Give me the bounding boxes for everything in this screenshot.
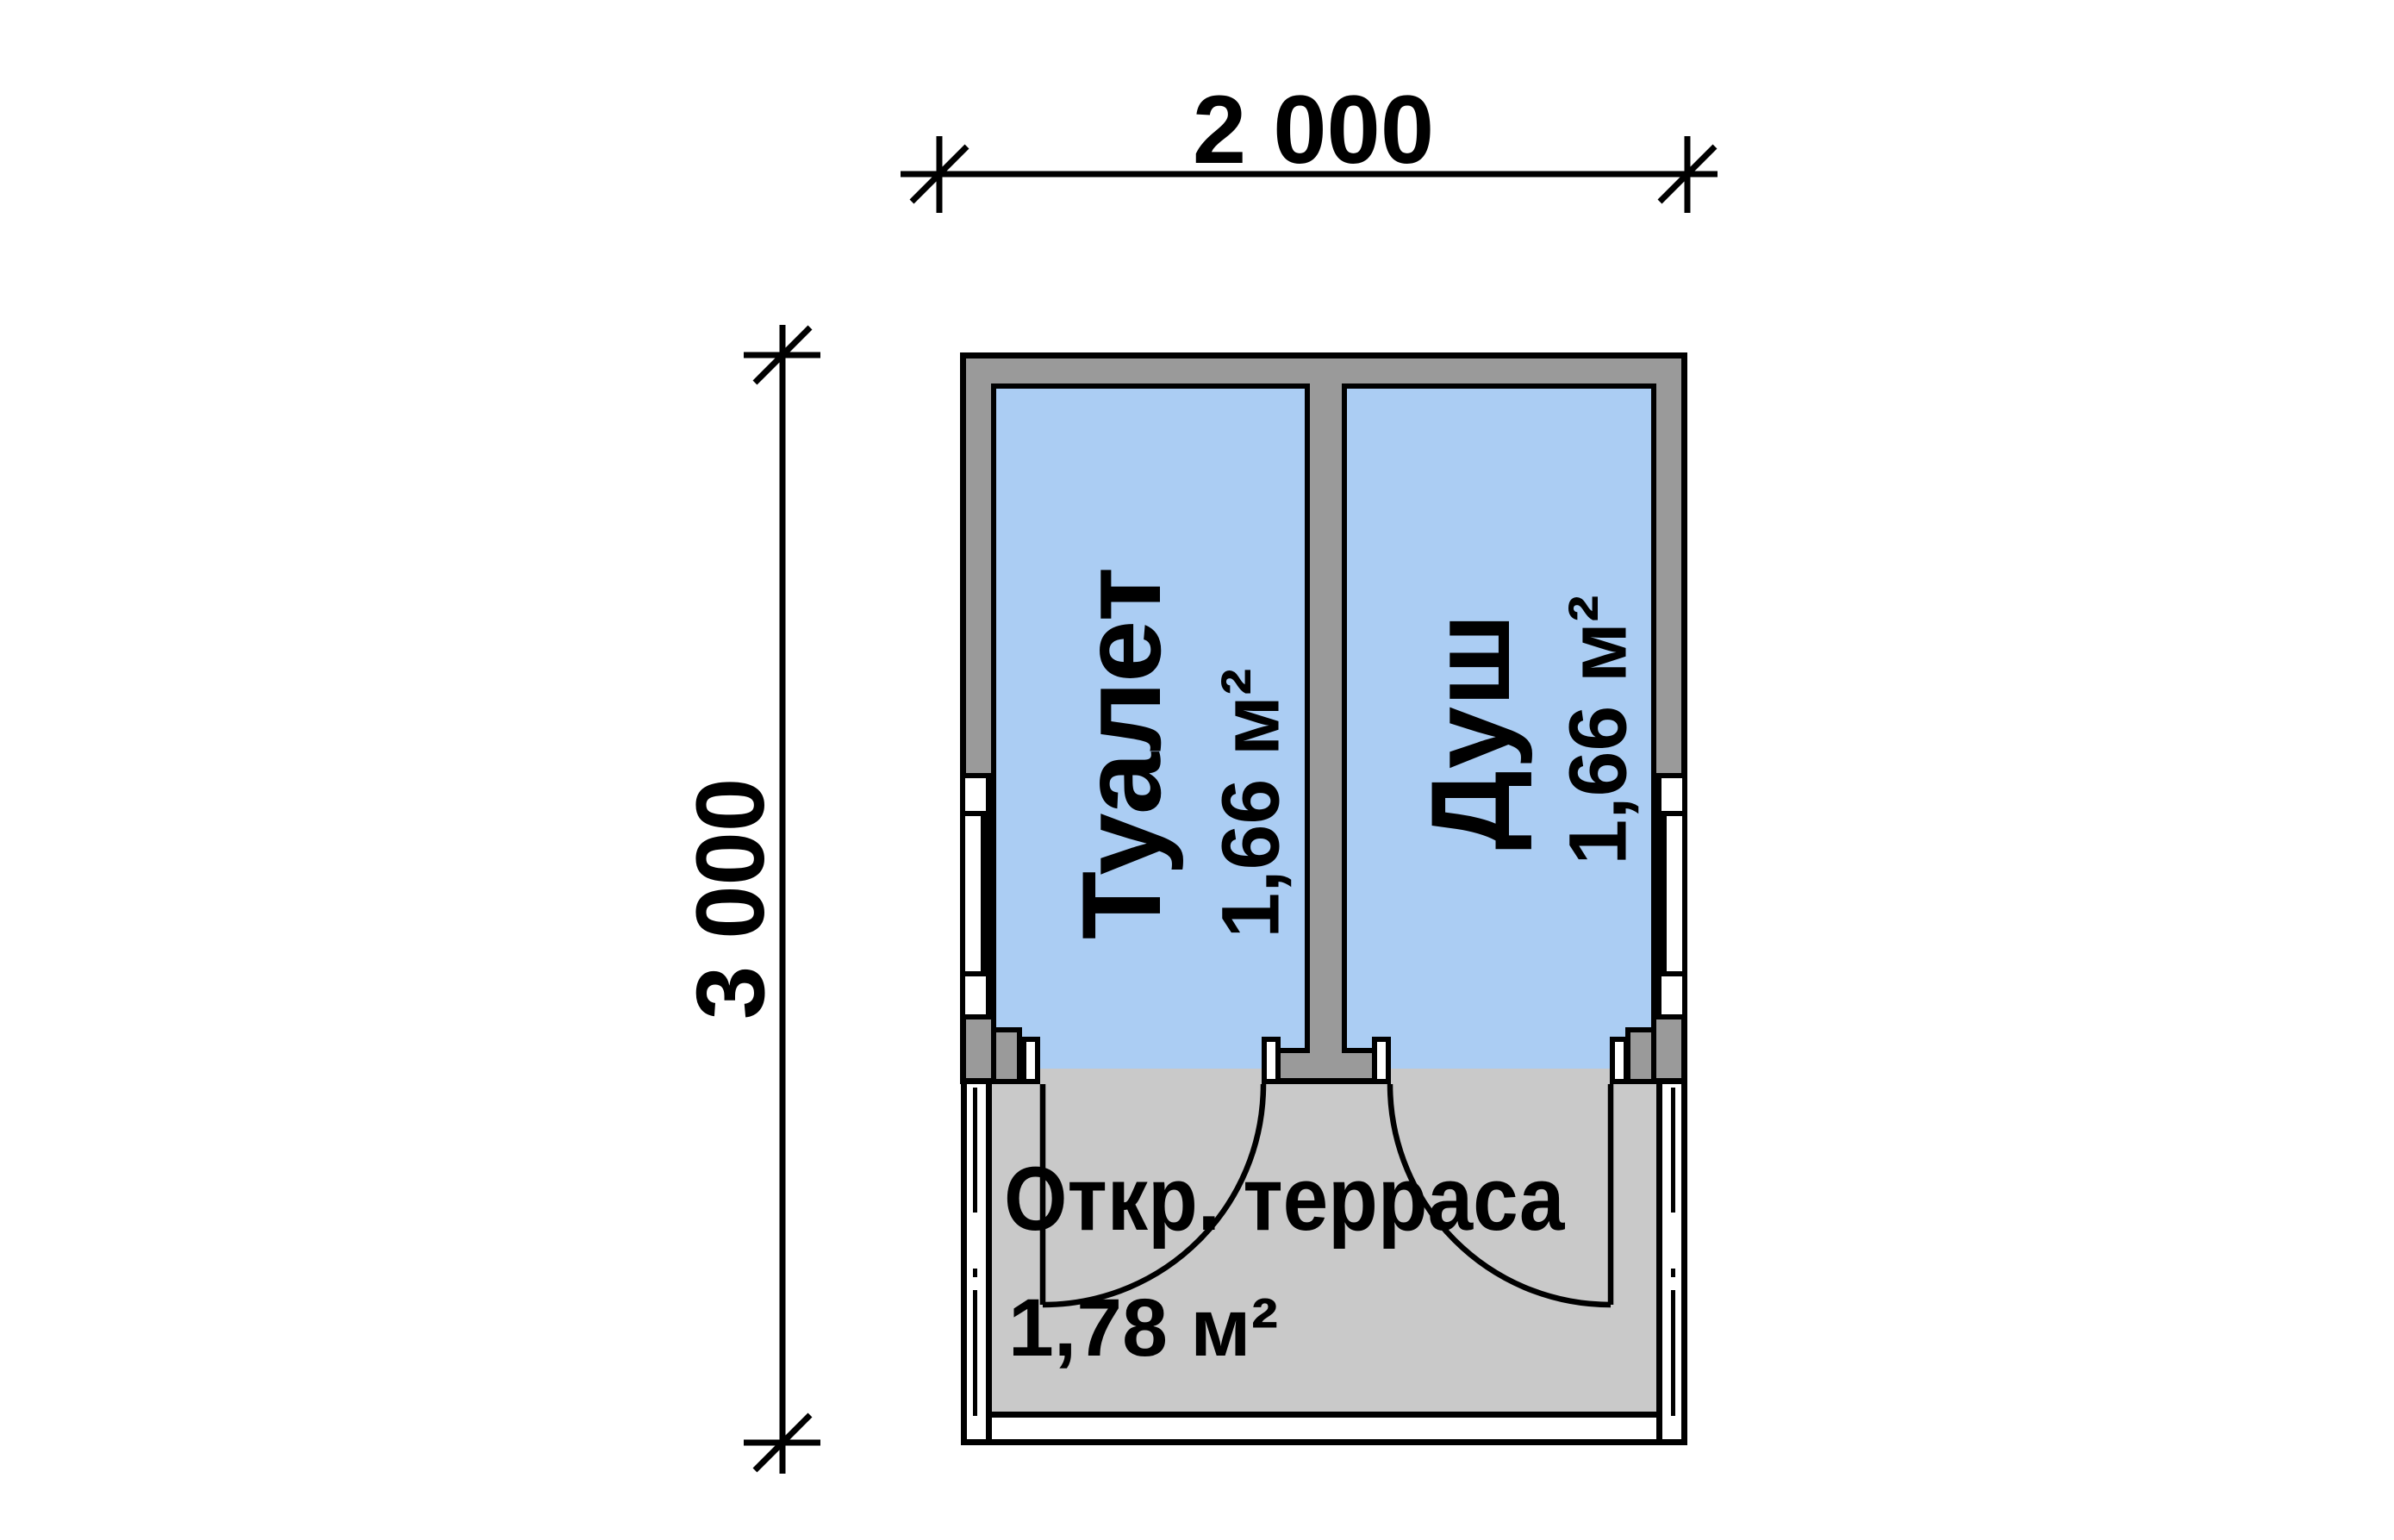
- door-threshold-shower: [1391, 1069, 1610, 1084]
- door-jamb-shower-right: [1610, 1037, 1629, 1084]
- terrace-edge-left-outer: [961, 1079, 967, 1445]
- room-toilet-label: Туалет: [1065, 567, 1177, 939]
- wall-step-right: [1625, 1027, 1656, 1084]
- dimension-tick-left-bottom: [755, 1415, 810, 1470]
- terrace-area-label: 1,78 м²: [1008, 1287, 1278, 1369]
- door-threshold-toilet: [1040, 1069, 1262, 1084]
- window-right-bottom-mullion: [1661, 971, 1682, 976]
- floor-plan-canvas: 2 000 3 000 Туалет 1,66 м² Душ 1,66 м² О…: [0, 0, 2394, 1540]
- room-shower-label: Душ: [1414, 614, 1526, 851]
- terrace-label: Откр. терраса: [1004, 1154, 1564, 1244]
- door-opening-toilet: [1040, 1048, 1262, 1069]
- wall-step-left: [991, 1027, 1022, 1084]
- window-right: [1656, 773, 1687, 1019]
- terrace-edge-right-inner: [1656, 1079, 1662, 1445]
- dimension-tick-left-top: [755, 327, 810, 383]
- terrace-edge-left-inner: [986, 1079, 992, 1445]
- terrace-front-edge-inner: [992, 1412, 1656, 1418]
- dimension-width-label: 2 000: [1193, 82, 1434, 178]
- room-shower-area: 1,66 м²: [1558, 595, 1640, 864]
- door-opening-shower: [1391, 1048, 1610, 1069]
- door-jamb-toilet-left: [1021, 1037, 1040, 1084]
- dimension-height-label: 3 000: [683, 778, 779, 1019]
- terrace-axis-left-dash2: [973, 1290, 977, 1416]
- terrace-axis-right-dash1: [1671, 1088, 1675, 1213]
- room-toilet-area: 1,66 м²: [1211, 668, 1293, 938]
- door-jamb-toilet-right: [1262, 1037, 1281, 1084]
- terrace-front-edge-outer: [961, 1439, 1687, 1445]
- door-jamb-shower-left: [1372, 1037, 1391, 1084]
- dimension-tick-top-right: [1660, 147, 1715, 202]
- window-left-glazing: [981, 816, 986, 971]
- dimension-tick-top-left: [912, 147, 967, 202]
- terrace-axis-left-dash1: [973, 1088, 977, 1213]
- window-left: [960, 773, 991, 1019]
- terrace-axis-right-dash2: [1671, 1290, 1675, 1416]
- window-right-glazing: [1661, 816, 1667, 971]
- terrace-edge-right-outer: [1681, 1079, 1687, 1445]
- terrace-axis-right-dot: [1671, 1269, 1675, 1277]
- terrace-axis-left-dot: [973, 1269, 977, 1277]
- window-left-bottom-mullion: [965, 971, 986, 976]
